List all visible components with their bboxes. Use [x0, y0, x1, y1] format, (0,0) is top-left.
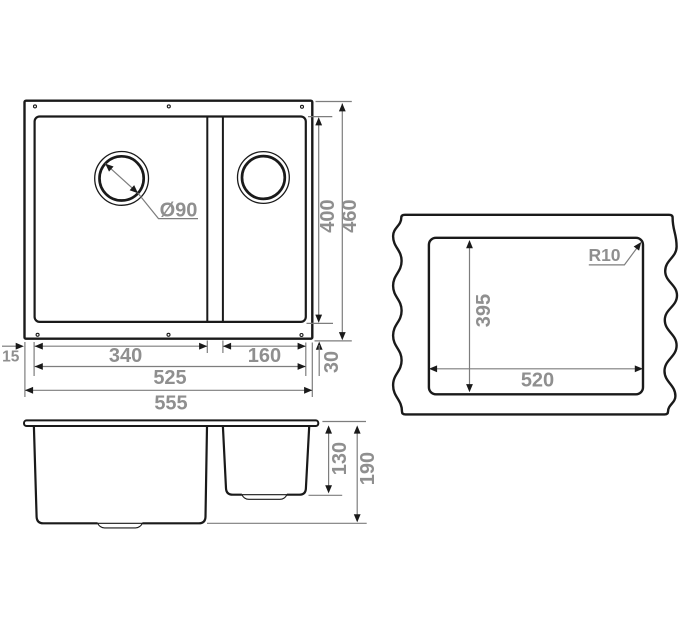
svg-text:130: 130: [329, 442, 351, 475]
svg-text:160: 160: [248, 345, 281, 367]
svg-text:R10: R10: [588, 245, 620, 265]
svg-text:15: 15: [2, 349, 20, 366]
svg-text:190: 190: [357, 452, 379, 485]
svg-text:30: 30: [321, 351, 343, 373]
svg-text:525: 525: [153, 367, 186, 389]
svg-text:395: 395: [473, 294, 495, 327]
svg-text:520: 520: [521, 369, 554, 391]
svg-text:400: 400: [317, 199, 339, 232]
svg-text:340: 340: [109, 345, 142, 367]
svg-text:555: 555: [154, 392, 187, 414]
svg-text:460: 460: [339, 199, 361, 232]
svg-text:Ø90: Ø90: [160, 200, 198, 222]
